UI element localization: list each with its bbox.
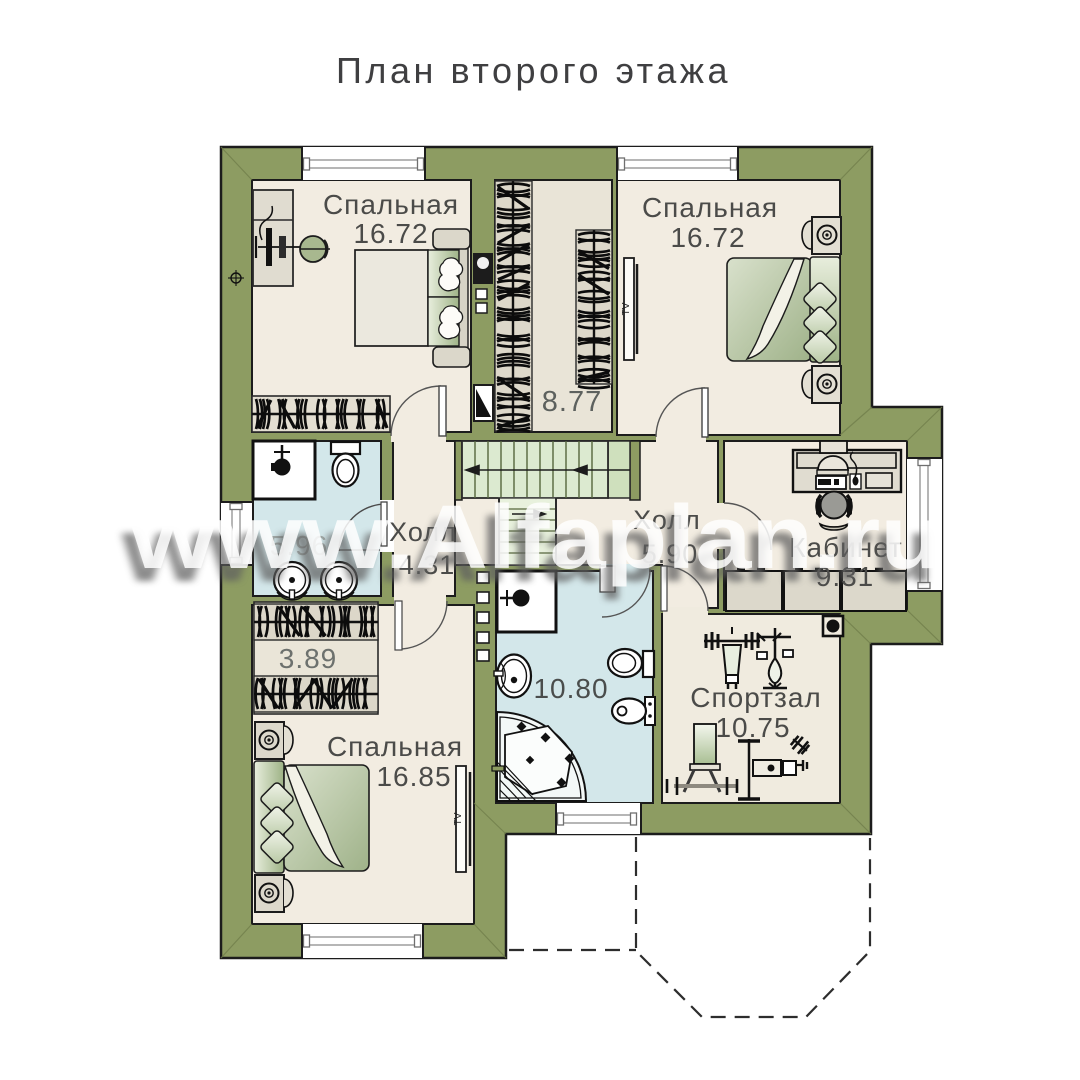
svg-text:16.72: 16.72 bbox=[670, 222, 745, 253]
svg-text:План второго этажа: План второго этажа bbox=[336, 50, 732, 91]
svg-text:Alfaplan.ru: Alfaplan.ru bbox=[415, 487, 942, 588]
svg-text:8.77: 8.77 bbox=[542, 386, 602, 418]
svg-text:Спальная: Спальная bbox=[323, 189, 459, 220]
svg-text:Спальная: Спальная bbox=[642, 192, 778, 223]
svg-text:www.: www. bbox=[129, 488, 415, 588]
svg-text:3.89: 3.89 bbox=[279, 643, 338, 674]
svg-text:Спортзал: Спортзал bbox=[690, 682, 821, 713]
svg-text:TV: TV bbox=[621, 302, 632, 315]
svg-text:Спальная: Спальная bbox=[327, 731, 463, 762]
svg-text:TV: TV bbox=[453, 812, 464, 825]
svg-text:16.72: 16.72 bbox=[353, 218, 428, 249]
svg-text:10.75: 10.75 bbox=[715, 712, 790, 743]
svg-text:16.85: 16.85 bbox=[376, 761, 451, 792]
svg-text:10.80: 10.80 bbox=[533, 673, 608, 704]
